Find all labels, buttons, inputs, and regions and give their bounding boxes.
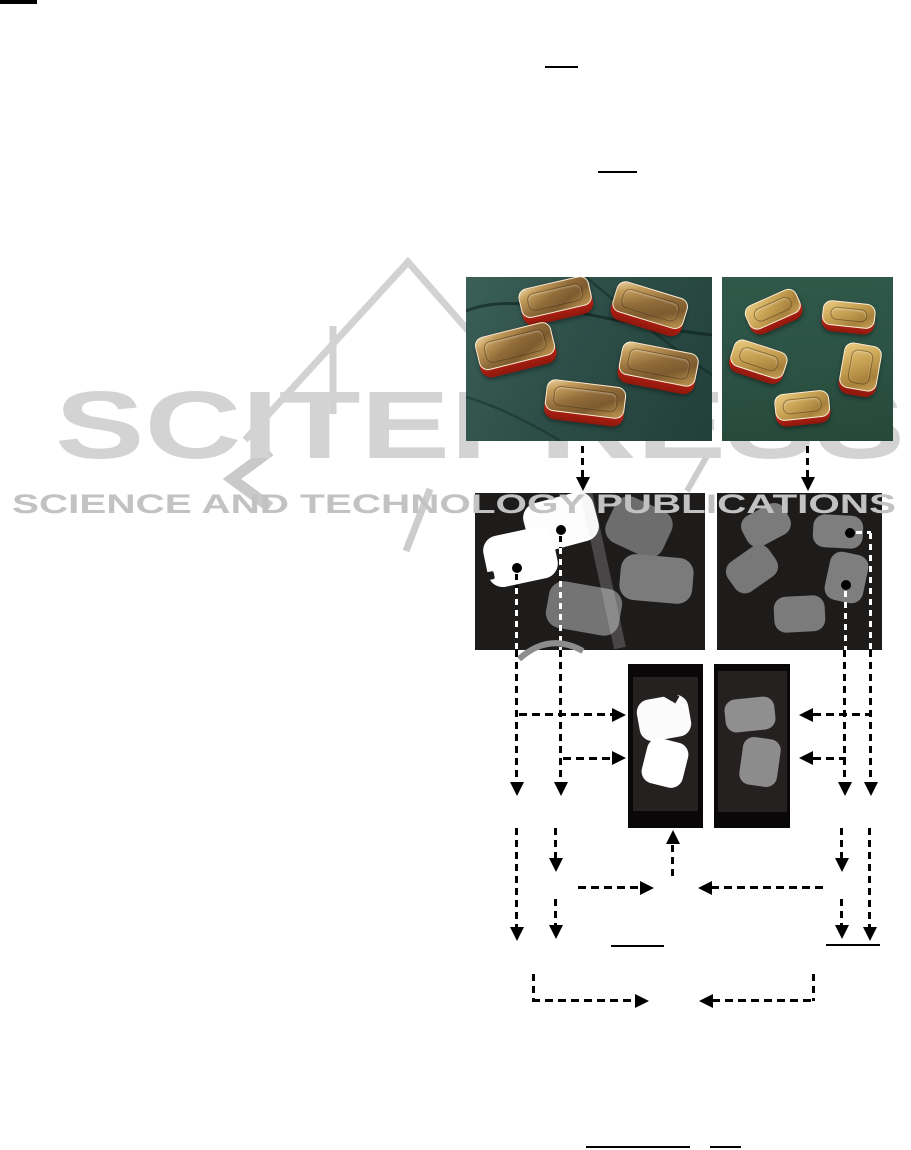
crop-blob-gray — [738, 736, 782, 789]
dashed-arrow-photo-to-mask-left — [581, 446, 584, 477]
dashed-branch — [519, 713, 613, 716]
watermark-subtitle: SCIENCE AND TECHNOLOGY PUBLICATIONS — [12, 489, 896, 519]
dashed-line — [515, 828, 518, 928]
paper-page: SCITEPRESS — [0, 0, 911, 1150]
arrowhead-down — [864, 782, 878, 796]
watermark-swoosh-tail — [519, 643, 583, 659]
dashed-line — [869, 650, 872, 783]
dashed-arrow-photo-to-mask-right — [806, 446, 809, 477]
arrowhead-down — [549, 925, 563, 939]
dashed-elbow — [532, 999, 636, 1002]
dashed-line — [554, 828, 557, 859]
dashed-elbow — [712, 999, 815, 1002]
dashed-line — [515, 650, 518, 783]
arrowhead-right — [635, 994, 649, 1008]
crop-blob-gray — [723, 695, 776, 733]
caption-rule-short — [710, 1146, 741, 1148]
dashed-line — [868, 828, 871, 928]
dashed-line — [843, 650, 846, 783]
arrowhead-right — [640, 881, 654, 895]
arrowhead-left — [699, 994, 713, 1008]
fraction-rule-2 — [598, 171, 637, 173]
dashed-line — [554, 899, 557, 927]
caption-rule-long — [586, 1146, 690, 1148]
arrowhead-down — [549, 858, 563, 872]
label-underline-right — [826, 944, 880, 946]
arrowhead-right — [612, 751, 626, 765]
fraction-rule-1 — [545, 66, 578, 68]
dashed-branch — [813, 713, 871, 716]
arrowhead-left — [698, 881, 712, 895]
arrowhead-down — [863, 927, 877, 941]
arrowhead-right — [612, 708, 626, 722]
arrowhead-down — [835, 858, 849, 872]
dashed-branch — [813, 757, 846, 760]
dashed-line — [840, 828, 843, 859]
arrowhead-down — [510, 927, 524, 941]
dashed-line — [559, 650, 562, 783]
dashed-line — [840, 899, 843, 927]
arrowhead-down — [801, 477, 815, 491]
label-underline-left — [611, 945, 664, 947]
arrowhead-down — [576, 477, 590, 491]
arrowhead-left — [799, 708, 813, 722]
arrowhead-down — [510, 782, 524, 796]
arrowhead-down — [554, 782, 568, 796]
dashed-line — [578, 886, 641, 889]
arrowhead-down — [835, 925, 849, 939]
dashed-line — [711, 886, 823, 889]
arrowhead-left — [799, 751, 813, 765]
watermark-subtitle-layer: SCIENCE AND TECHNOLOGY PUBLICATIONS — [0, 0, 911, 700]
dashed-elbow — [812, 974, 815, 1001]
dashed-line — [671, 845, 674, 877]
dashed-branch — [563, 757, 613, 760]
dashed-elbow — [532, 974, 535, 1001]
corner-bar — [0, 0, 37, 4]
arrowhead-up — [666, 830, 680, 844]
arrowhead-down — [838, 782, 852, 796]
